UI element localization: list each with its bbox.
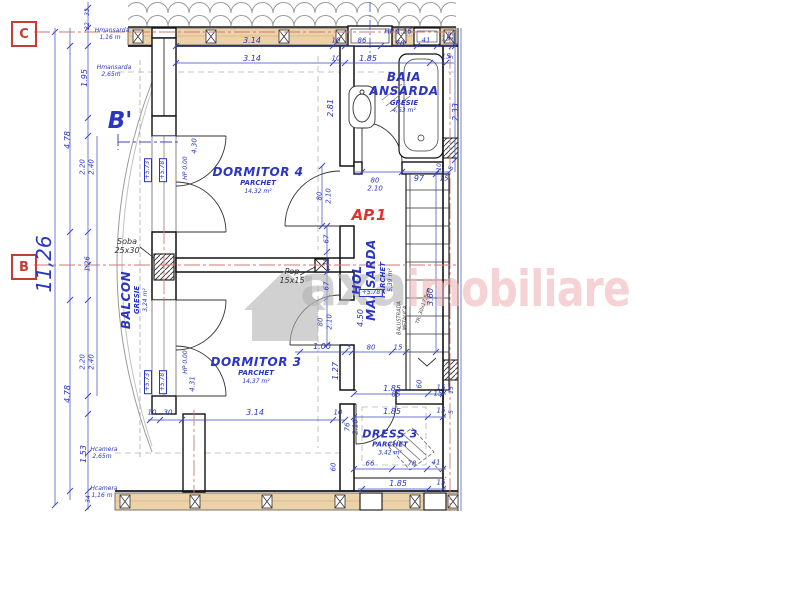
- room-baia-ansarda: BAIA ANSARDA GRESIE 4,63 m²: [369, 70, 438, 114]
- bottom-wall: [115, 491, 458, 510]
- grid-marker-c: C: [11, 21, 37, 47]
- room-dormitor4: DORMITOR 4 PARCHET 14,32 m²: [213, 165, 304, 195]
- bottom-window: [424, 493, 446, 510]
- partition-wall: [176, 258, 340, 275]
- chimney-block: [443, 360, 458, 380]
- apartment-label: AP.1: [352, 206, 387, 224]
- top-wall: [128, 28, 458, 46]
- bottom-window: [360, 493, 382, 510]
- room-balcon: BALCON GRESIE 3,24 m²: [119, 271, 149, 329]
- chimney-block: [443, 138, 458, 158]
- roof-tiles: [128, 1, 456, 27]
- top-right-window: [414, 28, 440, 45]
- room-dormitor3: DORMITOR 3 PARCHET 14,37 m²: [211, 355, 302, 385]
- watermark-house-icon: [244, 270, 326, 341]
- room-hol-mansarda: HOL MANSARDA PARCHET 5,39 m²: [350, 239, 394, 321]
- section-marker-label: B': [108, 108, 133, 134]
- grid-marker-b: B: [11, 254, 37, 280]
- room-dress3: DRESS 3 PARCHET 3,42 m²: [362, 428, 418, 457]
- floor-plan-canvas: C B B' AP.1 DORMITOR 4 PARCHET 14,32 m² …: [0, 0, 800, 600]
